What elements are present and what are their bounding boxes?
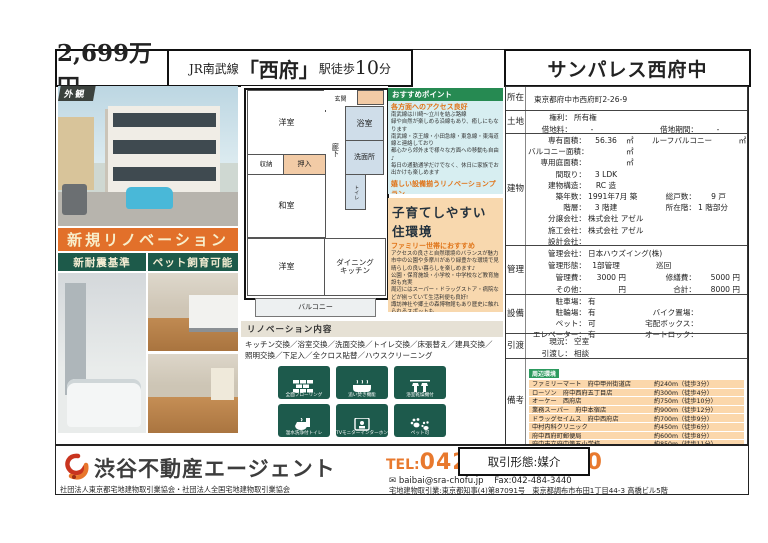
kitchen-photo: [148, 273, 238, 351]
value: 株式会社 アゼル: [588, 225, 643, 236]
points-title: おすすめポイント: [388, 88, 503, 101]
pet-banner-text: ペット飼育可能: [153, 255, 234, 270]
unit: ㎡: [712, 135, 746, 146]
section-building: 建物 専有面積：56.36㎡ ルーフバルコニー㎡ バルコニー面積：㎡ 専用庭面積…: [506, 133, 747, 246]
station-walk: 駅徒歩: [319, 60, 355, 77]
family-line: 周辺にはスーパー・ドラッグストア・病院などが揃っていて生活利便も良好!: [388, 287, 503, 302]
value: 有: [588, 307, 596, 318]
room-label: 和室: [279, 202, 295, 211]
label: 管理形態：: [528, 260, 586, 271]
renovation-banner-text: 新規リノベーション: [67, 229, 229, 250]
value: 9 戸: [696, 191, 726, 202]
room-label: 廊下: [331, 143, 339, 157]
room-washroom: 洗面所: [345, 140, 384, 175]
remark-row: ローソン 府中西府五丁目店約300m（徒歩4分）: [529, 389, 744, 397]
room-bath: 浴室: [345, 106, 384, 142]
neighbor-building: [58, 117, 94, 190]
unit: ㎡: [626, 146, 634, 157]
section-tag: 設備: [506, 295, 526, 334]
family-title: 子育てしやすい住環境: [388, 198, 503, 240]
spec-table: 所在 東京都府中市西府町2-26-9 土地 権利：所有権 借地料：- 借地期間：…: [505, 86, 748, 446]
earthquake-banner-text: 新耐震基準: [73, 255, 131, 270]
email-icon: ✉: [389, 476, 396, 486]
label: 所在階：: [656, 202, 696, 213]
room-toilet: トイレ: [345, 174, 366, 210]
label: バイク置場：: [636, 307, 698, 318]
section-tag: 管理: [506, 246, 526, 295]
email-fax-line: ✉ baibai@sra-chofu.jp Fax:042-484-3440: [389, 476, 572, 486]
points-line: 南武線・京王線・小田急線・東急線・東海道線と連絡しており: [388, 134, 503, 149]
feature-flooring: 全面フローリング: [278, 366, 330, 399]
room-balcony: バルコニー: [255, 298, 376, 317]
feature-label: 温水洗浄付トイレ: [286, 431, 323, 438]
value: 有: [588, 296, 596, 307]
value: 3 階建: [586, 202, 626, 213]
points-line: 毎日の通勤通学だけでなく、休日に家族でお出かけも楽しめます: [388, 163, 503, 178]
room-closet: 押入: [283, 154, 326, 176]
room-label: 洗面所: [354, 154, 375, 162]
room-label: 収納: [260, 161, 273, 168]
env-tag: 周辺環境: [529, 369, 559, 378]
washlet-toilet-icon: [293, 418, 315, 431]
label: ペット：: [528, 318, 586, 329]
property-name: サンパレス西府中: [547, 55, 707, 82]
company-name: 渋谷不動産エージェント: [94, 453, 336, 483]
renovation-content: キッチン交換／浴室交換／洗面交換／トイレ交換／床張替え／建具交換／照明交換／下足…: [241, 337, 503, 364]
label: 階層：: [528, 202, 586, 213]
section-tag: 建物: [506, 134, 526, 246]
section-handover: 引渡 現況：空室 引渡し：相談: [506, 333, 747, 359]
room-hallway: 廊下: [325, 112, 344, 188]
feature-pet-ok: ペット可: [394, 404, 446, 437]
living-photo: [148, 354, 238, 433]
renovation-title: リノベーション内容: [241, 321, 503, 337]
label: 間取り：: [528, 169, 586, 180]
section-tag: 備考: [506, 359, 526, 445]
blue-car: [126, 187, 173, 209]
feature-label: ペット可: [411, 431, 429, 438]
tel-label: TEL:: [386, 457, 420, 473]
remark-row: 中村内科クリニック約450m（徒歩6分）: [529, 423, 744, 431]
bathtub: [67, 379, 141, 427]
wood-floor: [148, 397, 238, 433]
room-label: 洋室: [279, 263, 295, 272]
footer: 渋谷不動産エージェント 社団法人東京都宅地建物取引業協会・社団法人全国宅地建物取…: [56, 444, 748, 494]
floor-plan: 洋室 玄関 浴室 廊下 洗面所 収納 押入 和室 トイレ 洋室 ダイニング キッ…: [241, 86, 388, 318]
license-text: 宅地建物取引業:東京都知事(4)第87091号 東京都調布市布田1丁目44-3 …: [389, 486, 668, 496]
flooring-icon: [293, 380, 315, 393]
remark-row: ファミリーマート 府中甲州街道店約240m（徒歩3分）: [529, 380, 744, 388]
unit: ㎡: [626, 157, 634, 168]
bathroom-photo: [58, 273, 146, 433]
label: 現況：: [528, 336, 572, 347]
station-name: 「西府」: [239, 54, 319, 83]
feature-label: 浴室乾燥機付: [406, 393, 434, 400]
flyer-page: 2,699万円 JR南武線「西府」駅徒歩10分 サンパレス西府中 外観 新規リノ…: [0, 0, 768, 543]
remarks-list: 周辺環境 ファミリーマート 府中甲州街道店約240m（徒歩3分） ローソン 府中…: [526, 359, 747, 449]
value: 株式会社 アゼル: [588, 213, 643, 224]
room-japanese: 和室: [247, 174, 326, 238]
label: 権利：: [528, 112, 572, 123]
value: 可: [588, 318, 596, 329]
value: 1部管理: [586, 260, 626, 271]
remark-row: 府中西府町郵便局約600m（徒歩8分）: [529, 432, 744, 440]
label: 分譲会社：: [528, 213, 586, 224]
label: バルコニー面積：: [528, 146, 586, 157]
kitchen-counter: [189, 295, 239, 332]
label: 駐輪場：: [528, 307, 586, 318]
section-tag: 所在: [506, 87, 526, 110]
remark-row: オーケー 西府店約750m（徒歩10分）: [529, 397, 744, 405]
feature-washlet: 温水洗浄付トイレ: [278, 404, 330, 437]
renovation-banner: 新規リノベーション: [58, 228, 238, 251]
label: 駐車場：: [528, 296, 586, 307]
section-equipment: 設備 駐車場：有 駐輪場：有 バイク置場： ペット：可 宅配ボックス： エレベー…: [506, 294, 747, 334]
feature-label: 全面フローリング: [286, 393, 323, 400]
renovation-box: リノベーション内容 キッチン交換／浴室交換／洗面交換／トイレ交換／床張替え／建具…: [241, 321, 503, 363]
section-location: 所在 東京都府中市西府町2-26-9: [506, 87, 747, 110]
room-label: バルコニー: [298, 304, 333, 312]
family-line: 公園・保育施設・小学校・中学校など教育施設も充実: [388, 273, 503, 288]
label: 専有面積：: [528, 135, 586, 146]
association-text: 社団法人東京都宅地建物取引業協会・社団法人全国宅地建物取引業協会: [60, 485, 290, 495]
feature-reheat: 追い焚き機能: [336, 366, 388, 399]
tv-intercom-icon: [351, 418, 373, 431]
fax-number: Fax:042-484-3440: [494, 476, 571, 486]
label: 施工会社：: [528, 225, 586, 236]
label: 管理会社：: [528, 248, 586, 259]
window-band: [113, 167, 216, 181]
room-label: 玄関: [334, 97, 346, 104]
value: 空室: [574, 336, 589, 347]
apartment-building: [108, 106, 220, 196]
shoe-cabinet: [357, 90, 384, 105]
feature-tiles: 全面フローリング 追い焚き機能 浴室乾燥機付 温水洗浄付トイレ TVモニターイン…: [278, 366, 448, 438]
deal-type-box: 取引形態:媒介: [458, 447, 590, 476]
reheat-bath-icon: [351, 380, 373, 393]
remark-row: ドラッグセイムス 府中西府店約700m（徒歩9分）: [529, 414, 744, 422]
earthquake-banner: 新耐震基準: [58, 253, 146, 271]
room-label: 浴室: [357, 120, 373, 129]
value: 日本ハウズイング(株): [588, 248, 662, 259]
label: ルーフバルコニー: [652, 135, 712, 146]
bath-dryer-icon: [409, 380, 431, 393]
station-box: JR南武線「西府」駅徒歩10分: [167, 49, 413, 87]
price-box: 2,699万円: [55, 49, 171, 87]
section-land: 土地 権利：所有権 借地料：- 借地期間：-: [506, 110, 747, 134]
points-subhead-reno: 嬉しい設備揃うリノベーションプラン: [388, 178, 503, 194]
family-line: 市中の公園や多摩川があり緑豊かな環境で見晴らしの良い暮らしを楽しめます♪: [388, 258, 503, 273]
bicycles: [62, 184, 87, 215]
room-label: ダイニング キッチン: [336, 259, 374, 276]
value: 1 階部分: [698, 202, 728, 213]
value: 5000 円: [696, 272, 740, 283]
station-line: JR南武線: [189, 60, 239, 77]
room-label: 洋室: [279, 119, 295, 128]
bathroom-mirror: [65, 283, 86, 395]
value: RC 造: [586, 180, 626, 191]
window-band: [113, 113, 216, 127]
window-band: [113, 140, 216, 154]
flyer-border: 2,699万円 JR南武線「西府」駅徒歩10分 サンパレス西府中 外観 新規リノ…: [55, 49, 749, 495]
room-opening: [211, 368, 234, 400]
section-tag: 土地: [506, 111, 526, 134]
pet-banner: ペット飼育可能: [148, 253, 238, 271]
room-label: 押入: [298, 161, 312, 169]
feature-bath-dryer: 浴室乾燥機付: [394, 366, 446, 399]
room-label: トイレ: [353, 185, 359, 200]
station-minutes: 10: [355, 57, 379, 79]
exterior-label: 外観: [58, 86, 96, 101]
value: 巡回: [656, 260, 671, 271]
points-subhead-access: 各方面へのアクセス良好: [388, 101, 503, 112]
station-minutes-unit: 分: [379, 60, 391, 77]
unit: ㎡: [626, 135, 634, 146]
value: 所有権: [574, 112, 597, 123]
family-line: 諏訪神社や郷土の森博物館もあり歴史に触れられるスポットも: [388, 302, 503, 312]
family-subtitle: ファミリー世帯におすすめ: [388, 240, 503, 251]
label: 築年数：: [528, 191, 586, 202]
points-line: 緑や自然が楽しめる沿線もあり、癒しにもなります: [388, 119, 503, 134]
remark-row: 業務スーパー 府中本宿店約900m（徒歩12分）: [529, 406, 744, 414]
label: 管理費：: [528, 272, 586, 283]
feature-label: 追い焚き機能: [348, 393, 376, 400]
label: 建物構造：: [528, 180, 586, 191]
exterior-photo: 外観: [58, 86, 238, 226]
property-name-box: サンパレス西府中: [504, 49, 751, 87]
room-western2: 洋室: [247, 238, 326, 296]
room-storage: 収納: [247, 154, 285, 176]
room-dining-kitchen: ダイニング キッチン: [324, 238, 386, 296]
family-box: 子育てしやすい住環境 ファミリー世帯におすすめ アクセスの良さと自然環境のバラン…: [388, 198, 503, 312]
company-logo-icon: [62, 452, 92, 482]
section-remarks: 備考 周辺環境 ファミリーマート 府中甲州街道店約240m（徒歩3分） ローソン…: [506, 358, 747, 445]
label: 専用庭面積：: [528, 157, 586, 168]
address: 東京都府中市西府町2-26-9: [534, 94, 627, 105]
section-management: 管理 管理会社：日本ハウズイング(株) 管理形態：1部管理 巡回 管理費：300…: [506, 245, 747, 295]
feature-label: TVモニターインターホン: [336, 431, 388, 438]
deal-type-text: 取引形態:媒介: [488, 454, 561, 470]
feature-intercom: TVモニターインターホン: [336, 404, 388, 437]
points-line: 都心から郊外まで様々な方面への移動も自由♪: [388, 148, 503, 163]
value: 1991年7月 築: [588, 191, 637, 202]
value: 56.36: [586, 136, 626, 145]
label: 総戸数：: [656, 191, 696, 202]
paw-icon: [409, 418, 431, 431]
label: 宅配ボックス：: [636, 318, 698, 329]
room-western1: 洋室: [247, 90, 326, 156]
section-tag: 引渡: [506, 334, 526, 359]
value: 3000 円: [586, 272, 626, 283]
value: 3 LDK: [586, 170, 626, 179]
email-address: baibai@sra-chofu.jp: [399, 476, 484, 486]
points-box: おすすめポイント 各方面へのアクセス良好 南武線は川崎～立川を結ぶ路線 緑や自然…: [388, 88, 503, 194]
label: 修繕費：: [656, 272, 696, 283]
